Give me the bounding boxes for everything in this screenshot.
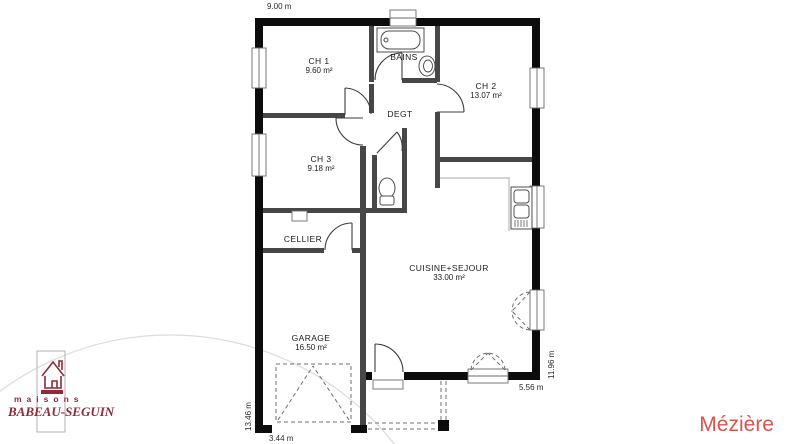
babeau-seguin-logo: maisons BABEAU-SEGUIN: [7, 351, 115, 432]
logo-line2: BABEAU-SEGUIN: [7, 404, 115, 419]
door-wc: [377, 132, 402, 153]
washbasin: [419, 56, 435, 76]
svg-text:CELLIER: CELLIER: [284, 234, 322, 244]
garage-opening: [272, 424, 351, 434]
room-label-cuisine-sejour: CUISINE+SEJOUR 33.00 m²: [409, 263, 489, 282]
garage-door-symbol: [276, 364, 351, 422]
watermark-circle: [0, 335, 455, 444]
dim-left: 13.46 m: [244, 402, 253, 431]
entry-opening: [372, 371, 404, 381]
svg-text:BAINS: BAINS: [390, 52, 418, 62]
room-label-degt: DEGT: [387, 109, 412, 119]
floorplan-drawing: CH 1 9.60 m² CH 2 13.07 m² CH 3 9.18 m² …: [0, 0, 800, 444]
toilet: [379, 178, 395, 205]
svg-text:CH 1: CH 1: [309, 56, 330, 66]
svg-text:13.07 m²: 13.07 m²: [470, 91, 502, 100]
room-label-ch1: CH 1 9.60 m²: [305, 56, 332, 75]
svg-text:33.00 m²: 33.00 m²: [433, 273, 465, 282]
svg-text:CH 2: CH 2: [476, 81, 497, 91]
svg-text:9.60 m²: 9.60 m²: [305, 66, 332, 75]
bathtub: [377, 28, 424, 52]
svg-text:16.50 m²: 16.50 m²: [295, 343, 327, 352]
entry-sill: [373, 380, 403, 389]
dim-top: 9.00 m: [267, 2, 292, 11]
door-ch2: [437, 84, 464, 112]
svg-text:GARAGE: GARAGE: [292, 333, 331, 343]
kitchen-sink: [440, 178, 532, 231]
svg-text:DEGT: DEGT: [387, 109, 412, 119]
door-cellier: [325, 223, 352, 250]
dim-bottom-right: 5.56 m: [519, 383, 544, 392]
room-label-bains: BAINS: [390, 52, 418, 62]
logo-line1: maisons: [14, 394, 84, 404]
svg-text:CH 3: CH 3: [311, 154, 332, 164]
model-name: Mézière: [699, 413, 774, 436]
room-label-ch2: CH 2 13.07 m²: [470, 81, 502, 100]
dashed-symbols: [276, 292, 530, 431]
dim-bottom-left: 3.44 m: [269, 434, 294, 443]
room-label-cellier: CELLIER: [284, 234, 322, 244]
entry-door: [375, 344, 403, 372]
room-label-ch3: CH 3 9.18 m²: [307, 154, 334, 173]
windows: [252, 10, 544, 434]
porch-post: [438, 420, 449, 431]
door-ch3: [336, 118, 363, 145]
door-ch1: [345, 88, 371, 115]
room-label-garage: GARAGE 16.50 m²: [292, 333, 331, 352]
floorplan-page: CH 1 9.60 m² CH 2 13.07 m² CH 3 9.18 m² …: [0, 0, 800, 444]
house-icon: [42, 361, 64, 388]
svg-text:CUISINE+SEJOUR: CUISINE+SEJOUR: [409, 263, 489, 273]
svg-text:9.18 m²: 9.18 m²: [307, 164, 334, 173]
cellier-hatch: [292, 211, 307, 221]
dim-right: 11.96 m: [547, 350, 556, 379]
